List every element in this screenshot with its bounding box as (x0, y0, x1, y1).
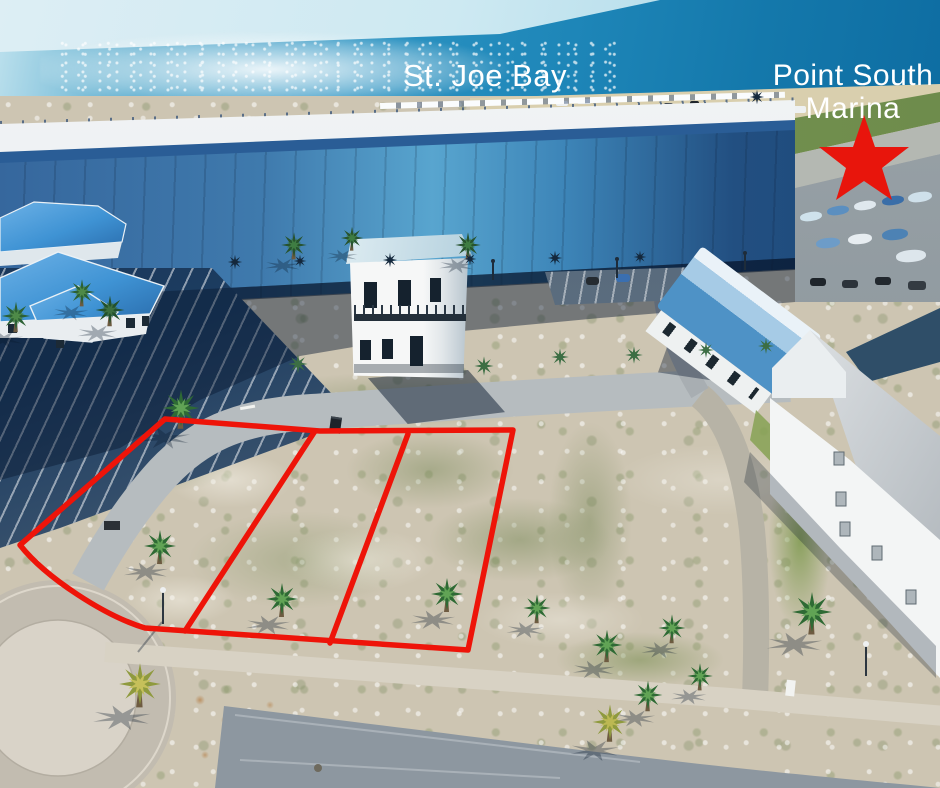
marina-label-line1: Point South (766, 59, 940, 92)
marina-label: Point South Marina (766, 59, 940, 125)
bay-label: St. Joe Bay (360, 58, 610, 94)
lot-divider (330, 434, 408, 643)
aerial-photo: St. Joe Bay Point South Marina (0, 0, 940, 788)
marina-star-icon (819, 115, 909, 200)
lot-boundary (20, 419, 513, 650)
marina-label-line2: Marina (766, 92, 940, 125)
lot-divider (185, 431, 315, 631)
